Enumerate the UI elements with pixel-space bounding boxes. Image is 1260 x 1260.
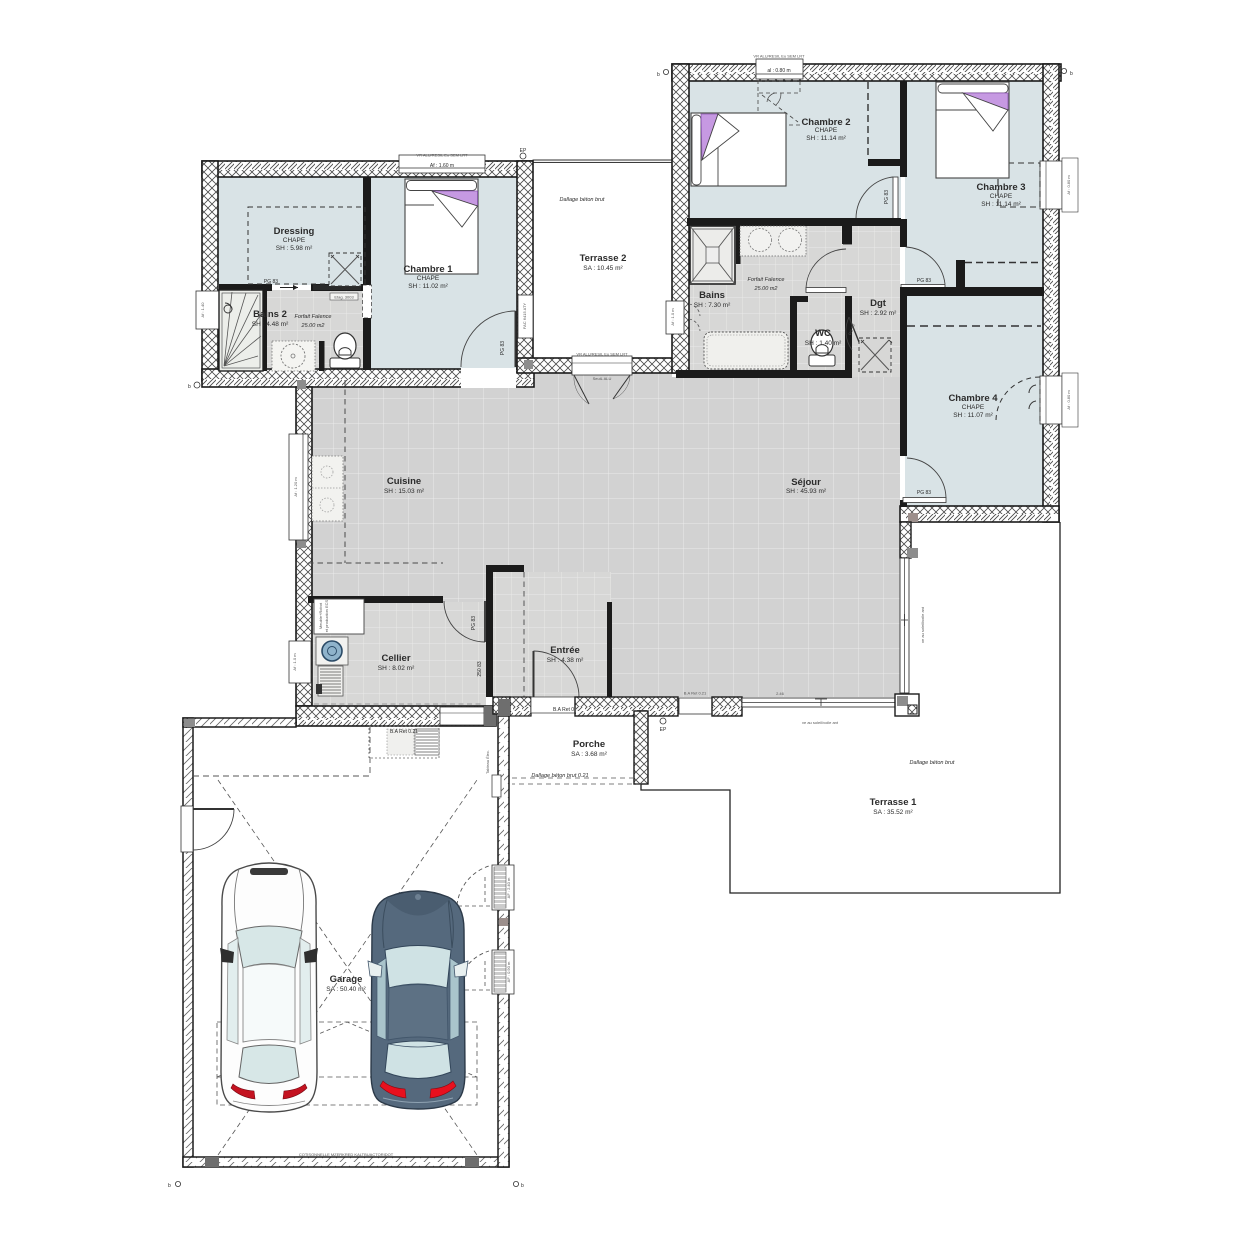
svg-text:VR ALU/RESIL Eu SEM LRT: VR ALU/RESIL Eu SEM LRT: [576, 352, 628, 357]
svg-text:b: b: [1070, 71, 1073, 77]
svg-text:Séjour: Séjour: [791, 477, 821, 488]
svg-text:Af : 1.0 m: Af : 1.0 m: [670, 308, 675, 326]
svg-text:b: b: [188, 384, 191, 390]
svg-text:PG 83: PG 83: [917, 278, 931, 284]
svg-text:Af : 1.0 m: Af : 1.0 m: [292, 653, 297, 671]
svg-text:Forfait Faïence: Forfait Faïence: [295, 314, 332, 320]
svg-text:SeuiL ALU: SeuiL ALU: [593, 376, 612, 381]
svg-text:250 83: 250 83: [477, 661, 483, 677]
svg-text:COTISONNELLE MZERKRED KALTBUAC: COTISONNELLE MZERKRED KALTBUACTORIDOT: [299, 1152, 394, 1157]
svg-text:CHAPE: CHAPE: [990, 193, 1013, 200]
svg-text:Dallage béton brut 0.21: Dallage béton brut 0.21: [531, 773, 588, 779]
svg-text:SH : 8.02 m²: SH : 8.02 m²: [378, 665, 415, 672]
svg-text:et production ECS: et production ECS: [324, 599, 329, 632]
svg-text:Dressing: Dressing: [274, 226, 315, 237]
svg-text:Chambre 3: Chambre 3: [976, 182, 1025, 193]
svg-text:b: b: [657, 72, 660, 78]
svg-text:Chambre 4: Chambre 4: [948, 393, 998, 404]
svg-text:CHAPE: CHAPE: [283, 237, 306, 244]
svg-text:SH : 4.38 m²: SH : 4.38 m²: [547, 657, 584, 664]
svg-text:SH : 11.07 m²: SH : 11.07 m²: [953, 412, 993, 419]
svg-text:Dallage béton brut: Dallage béton brut: [560, 197, 605, 203]
svg-text:SH : 7.30 m²: SH : 7.30 m²: [694, 302, 731, 309]
svg-text:Af : 1.60 m: Af : 1.60 m: [430, 163, 454, 169]
svg-text:B.A Ret 0.21: B.A Ret 0.21: [390, 729, 418, 735]
svg-text:VR ALU/RESIL Eu SEM LRT: VR ALU/RESIL Eu SEM LRT: [753, 54, 805, 59]
svg-text:Porche: Porche: [573, 739, 605, 750]
svg-text:SH : 5.98 m²: SH : 5.98 m²: [276, 245, 313, 252]
svg-text:SH : 1.40 m²: SH : 1.40 m²: [805, 340, 842, 347]
svg-text:SH : 11.14 m²: SH : 11.14 m²: [981, 201, 1021, 208]
svg-text:B.A Ret 0.21: B.A Ret 0.21: [684, 691, 707, 696]
svg-text:Chambre 1: Chambre 1: [403, 264, 453, 275]
svg-text:AF : 2.40 m: AF : 2.40 m: [506, 877, 511, 898]
svg-text:SH : 45.93 m²: SH : 45.93 m²: [786, 488, 827, 495]
svg-text:2.46: 2.46: [776, 691, 785, 696]
svg-text:Af : 1.40: Af : 1.40: [200, 302, 205, 318]
svg-text:SA : 10.45 m²: SA : 10.45 m²: [583, 265, 623, 272]
svg-text:EP: EP: [660, 727, 667, 733]
svg-text:Etag. 3003: Etag. 3003: [334, 295, 354, 300]
svg-text:SA : 3.68 m²: SA : 3.68 m²: [571, 751, 608, 758]
svg-text:VR ALU/RESIL Eu SEM LRT: VR ALU/RESIL Eu SEM LRT: [416, 153, 468, 158]
svg-text:Bains 2: Bains 2: [253, 309, 287, 320]
svg-text:CHAPE: CHAPE: [815, 127, 838, 134]
svg-text:Terrasse 2: Terrasse 2: [580, 253, 627, 264]
svg-text:25.00 m2: 25.00 m2: [754, 286, 778, 292]
svg-text:SH : 11.02 m²: SH : 11.02 m²: [408, 283, 448, 290]
svg-text:al : 0.80 m: al : 0.80 m: [767, 68, 790, 74]
svg-text:WC: WC: [815, 328, 831, 339]
svg-text:b: b: [168, 1183, 171, 1189]
svg-text:SH : 4.48 m²: SH : 4.48 m²: [252, 321, 289, 328]
svg-text:AF : 0.90 m: AF : 0.90 m: [506, 961, 511, 982]
svg-text:SA : 50.40 m²: SA : 50.40 m²: [326, 986, 366, 993]
svg-text:Af : 1.20 m: Af : 1.20 m: [293, 477, 298, 497]
svg-text:Af : 0.80 m: Af : 0.80 m: [1066, 390, 1071, 410]
svg-text:Entrée: Entrée: [550, 645, 580, 656]
svg-text:SH : 15.03 m²: SH : 15.03 m²: [384, 488, 425, 495]
svg-text:Af : 0.80 m: Af : 0.80 m: [1066, 175, 1071, 195]
svg-text:PG 83: PG 83: [884, 190, 890, 204]
svg-text:SA : 35.52 m²: SA : 35.52 m²: [873, 809, 913, 816]
svg-text:PG 83: PG 83: [500, 341, 506, 355]
svg-text:Forfait Faïence: Forfait Faïence: [748, 277, 785, 283]
svg-text:Dallage béton brut: Dallage béton brut: [910, 760, 955, 766]
svg-text:Terrasse 1: Terrasse 1: [870, 797, 918, 808]
svg-text:b: b: [521, 1183, 524, 1189]
svg-text:CHAPE: CHAPE: [962, 404, 985, 411]
svg-text:Meuble+Robot: Meuble+Robot: [318, 602, 323, 629]
svg-text:Cuisine: Cuisine: [387, 476, 421, 487]
svg-text:CHAPE: CHAPE: [417, 275, 440, 282]
svg-text:Tableau Élec.: Tableau Élec.: [485, 750, 490, 774]
svg-text:Bains: Bains: [699, 290, 725, 301]
svg-text:PG 83: PG 83: [471, 616, 477, 630]
svg-text:Garage: Garage: [330, 974, 363, 985]
svg-text:ve au soleil/voile ant: ve au soleil/voile ant: [920, 606, 925, 643]
svg-text:SH : 11.14 m²: SH : 11.14 m²: [806, 135, 846, 142]
svg-text:25.00 m2: 25.00 m2: [301, 323, 325, 329]
svg-text:ve au soleil/voile ant: ve au soleil/voile ant: [802, 720, 839, 725]
svg-text:SH : 2.92 m²: SH : 2.92 m²: [860, 310, 897, 317]
svg-text:FAC 6415 ATY: FAC 6415 ATY: [522, 303, 527, 329]
svg-text:Dgt: Dgt: [870, 298, 887, 309]
svg-text:PG 83: PG 83: [917, 490, 931, 496]
svg-text:Cellier: Cellier: [381, 653, 410, 664]
